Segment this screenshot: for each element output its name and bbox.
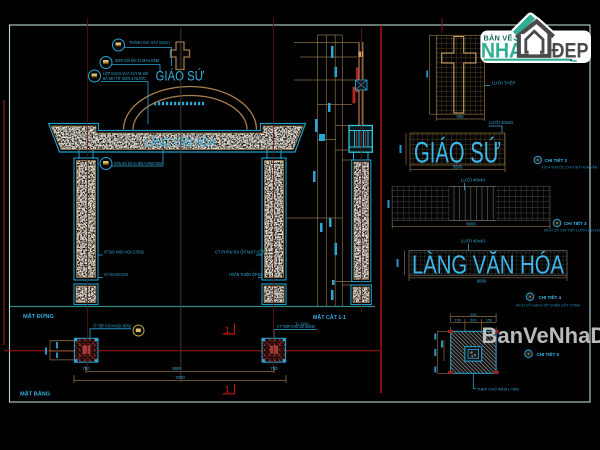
- svg-text:LƯỚI 40x40: LƯỚI 40x40: [461, 178, 485, 183]
- svg-text:MẶT CẮT 1-1: MẶT CẮT 1-1: [313, 313, 346, 321]
- svg-text:9000: 9000: [477, 279, 487, 284]
- svg-text:CHI TIẾT 2: CHI TIẾT 2: [545, 157, 568, 163]
- svg-text:HOÀN THIỆN ỐP ĐÁ: HOÀN THIỆN ỐP ĐÁ: [229, 272, 263, 277]
- svg-text:150: 150: [486, 318, 492, 322]
- svg-text:BanVeNhaDep: BanVeNhaDep: [482, 323, 600, 348]
- svg-text:600: 600: [470, 318, 476, 322]
- svg-text:8000: 8000: [466, 221, 476, 226]
- svg-text:150: 150: [455, 318, 461, 322]
- svg-text:CHI TIẾT 4: CHI TIẾT 4: [539, 294, 562, 300]
- svg-text:TL 1/50: TL 1/50: [295, 321, 309, 326]
- svg-text:900: 900: [470, 313, 476, 317]
- svg-text:CT PHẦN ĐÁ ỐP MẶT CỘT: CT PHẦN ĐÁ ỐP MẶT CỘT: [215, 250, 265, 255]
- svg-text:LƯỚI 40x40: LƯỚI 40x40: [489, 120, 513, 125]
- svg-text:LÀNG VĂN HÓA: LÀNG VĂN HÓA: [412, 250, 565, 280]
- svg-text:LƯỚI 40x40: LƯỚI 40x40: [461, 239, 485, 244]
- svg-text:THÁNH GIÁ XÂY GẠCH: THÁNH GIÁ XÂY GẠCH: [129, 40, 170, 45]
- svg-text:5500: 5500: [453, 164, 463, 169]
- svg-text:MẶT BẰNG: MẶT BẰNG: [20, 390, 50, 398]
- svg-text:CT THÉP CHỜ KHI ĐÚC MÓNG: CT THÉP CHỜ KHI ĐÚC MÓNG: [93, 324, 131, 329]
- svg-text:900: 900: [456, 114, 464, 119]
- svg-text:SƠN GIẢ ĐÁ 01 MÀU VÀNG KEM: SƠN GIẢ ĐÁ 01 MÀU VÀNG KEM: [114, 161, 162, 166]
- svg-text:KT ĐỤC KHĐÁ HOA CƯƠNG: KT ĐỤC KHĐÁ HOA CƯƠNG: [104, 250, 144, 255]
- svg-text:MẶT ĐỨNG: MẶT ĐỨNG: [23, 313, 54, 320]
- svg-text:CHI TIẾT 5: CHI TIẾT 5: [537, 351, 560, 357]
- svg-text:LÀNG VĂN HÓA: LÀNG VĂN HÓA: [145, 135, 215, 150]
- svg-text:KÍCH CỠ GẠCH ỐP CHÂN CỘT CỔNG: KÍCH CỠ GẠCH ỐP CHÂN CỘT CỔNG: [516, 303, 580, 308]
- svg-text:THÉP CHỜ 4Ø16 L=600: THÉP CHỜ 4Ø16 L=600: [477, 387, 519, 392]
- svg-text:CHI TIẾT 3: CHI TIẾT 3: [564, 220, 587, 226]
- svg-text:GIÁO SỨ: GIÁO SỨ: [156, 68, 205, 84]
- svg-text:750: 750: [82, 366, 90, 371]
- svg-text:KÍCH CỠ CHI TIẾT LƯỚI HÀN CHẮN: KÍCH CỠ CHI TIẾT LƯỚI HÀN CHẮN: [544, 228, 600, 233]
- svg-text:XÂY GẠCH ĐẶC M.100: XÂY GẠCH ĐẶC M.100: [104, 272, 128, 277]
- svg-text:BẢ MA TÍT SƠN 3 NƯỚC: BẢ MA TÍT SƠN 3 NƯỚC: [103, 76, 146, 81]
- svg-text:KÍCH THƯỚC CHI TIẾT HOA VĂN: KÍCH THƯỚC CHI TIẾT HOA VĂN: [542, 164, 598, 169]
- svg-text:SƠN GIẢ ĐÁ 01 MÀU KEM: SƠN GIẢ ĐÁ 01 MÀU KEM: [115, 58, 159, 63]
- svg-text:LƯỚI THÉP: LƯỚI THÉP: [492, 81, 516, 86]
- svg-text:750: 750: [270, 366, 278, 371]
